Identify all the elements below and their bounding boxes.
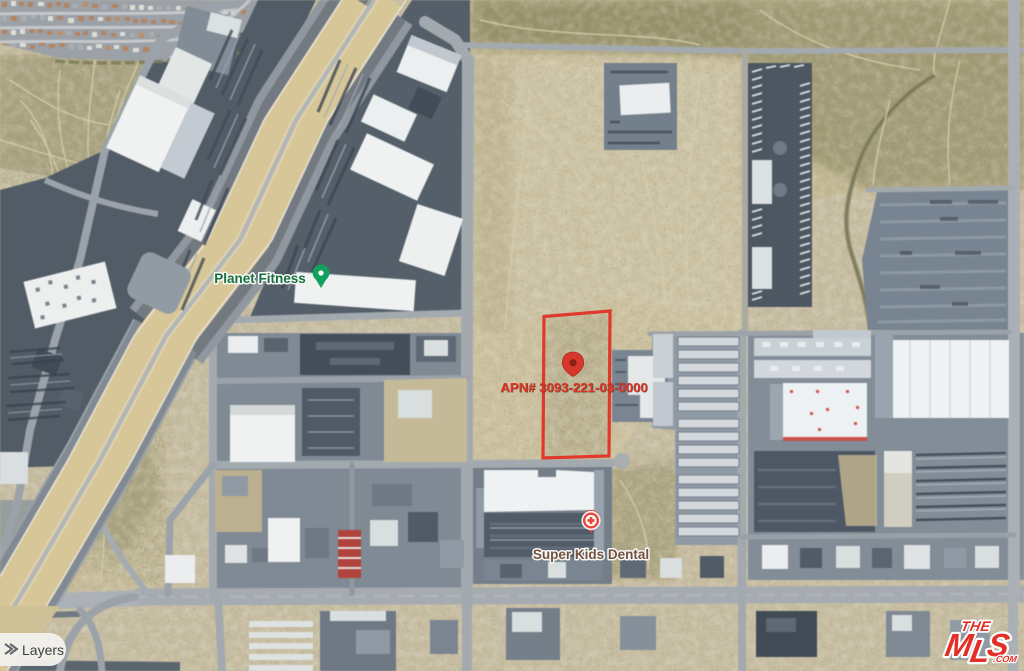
svg-text:.COM: .COM bbox=[992, 654, 1018, 664]
svg-text:Layers: Layers bbox=[22, 642, 64, 658]
svg-text:APN# 3093-221-03-0000: APN# 3093-221-03-0000 bbox=[500, 380, 647, 395]
svg-text:Super Kids Dental: Super Kids Dental bbox=[533, 547, 649, 562]
svg-text:Planet Fitness: Planet Fitness bbox=[214, 271, 306, 286]
